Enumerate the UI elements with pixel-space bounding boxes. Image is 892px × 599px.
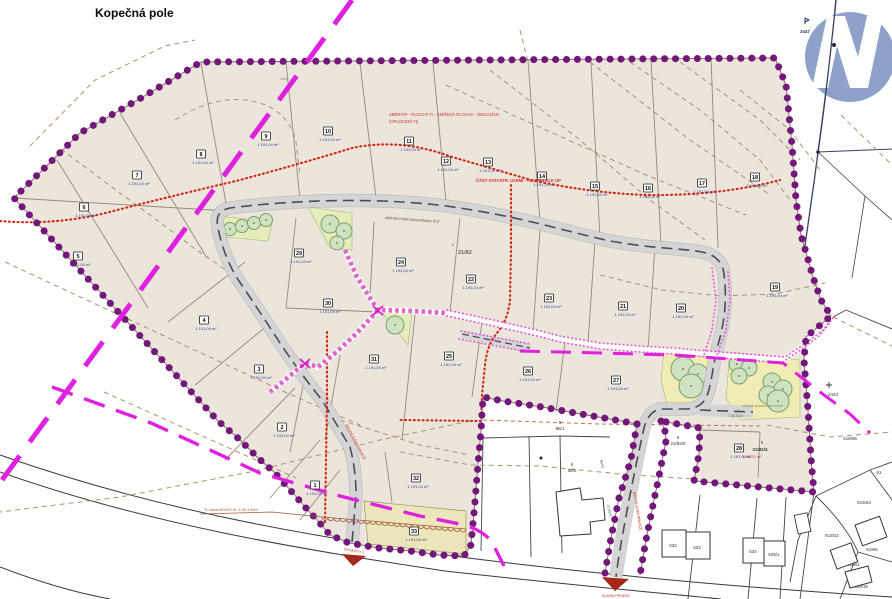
svg-text:1 191,04 m²: 1 191,04 m² xyxy=(69,262,91,267)
svg-text:1 191,04 m²: 1 191,04 m² xyxy=(195,326,217,331)
svg-text:21/82: 21/82 xyxy=(458,250,472,256)
svg-text:27: 27 xyxy=(613,378,619,384)
svg-text:20: 20 xyxy=(678,306,684,312)
svg-text:1 191,04 m²: 1 191,04 m² xyxy=(462,285,484,290)
svg-text:1 191,04 m²: 1 191,04 m² xyxy=(273,433,295,438)
svg-text:1 191,04 m²: 1 191,04 m² xyxy=(639,194,661,199)
svg-text:1 191,04 m²: 1 191,04 m² xyxy=(290,259,312,264)
svg-text:8: 8 xyxy=(199,152,202,158)
svg-text:1 191,04 m²: 1 191,04 m² xyxy=(693,189,715,194)
svg-text:634: 634 xyxy=(749,549,757,554)
svg-text:31: 31 xyxy=(371,357,377,363)
svg-text:18: 18 xyxy=(752,175,758,181)
svg-text:1 191,04 m²: 1 191,04 m² xyxy=(365,365,387,370)
svg-text:1 191,04 m²: 1 191,04 m² xyxy=(437,167,459,172)
svg-text:633: 633 xyxy=(693,545,701,550)
svg-text:1 191,04 m²: 1 191,04 m² xyxy=(75,213,97,218)
svg-text:619/63: 619/63 xyxy=(857,500,871,505)
svg-text:6: 6 xyxy=(82,205,85,211)
svg-text:29: 29 xyxy=(296,251,302,257)
svg-text:21/82/4: 21/82/4 xyxy=(752,447,768,452)
svg-text:19: 19 xyxy=(772,285,778,291)
svg-text:1 191,04 m²: 1 191,04 m² xyxy=(766,293,788,298)
svg-text:1 191,04 m²: 1 191,04 m² xyxy=(746,183,768,188)
svg-text:T.38,91m: T.38,91m xyxy=(728,414,743,418)
svg-text:61: 61 xyxy=(876,470,882,475)
svg-text:II: II xyxy=(452,242,454,247)
svg-text:11: 11 xyxy=(406,139,412,145)
svg-text:635/1: 635/1 xyxy=(768,552,780,557)
svg-text:(OPLOCENÍ TI): (OPLOCENÍ TI) xyxy=(389,119,419,124)
svg-text:13: 13 xyxy=(485,160,491,166)
svg-text:1 191,04 m²: 1 191,04 m² xyxy=(614,312,636,317)
svg-text:30: 30 xyxy=(325,301,331,307)
svg-text:1 191,04 m²: 1 191,04 m² xyxy=(192,160,214,165)
svg-text:1 191,04 m²: 1 191,04 m² xyxy=(607,386,629,391)
svg-text:1 191,04 m²: 1 191,04 m² xyxy=(440,362,462,367)
svg-text:10: 10 xyxy=(325,129,331,135)
svg-text:1 191,04 m²: 1 191,04 m² xyxy=(319,309,341,314)
svg-text:1 191,04 m²: 1 191,04 m² xyxy=(540,304,562,309)
svg-text:15: 15 xyxy=(592,184,598,190)
svg-text:1 191,04 m²: 1 191,04 m² xyxy=(392,268,414,273)
svg-text:1 191,04 m²: 1 191,04 m² xyxy=(319,137,341,142)
svg-text:1 191,04 m²: 1 191,04 m² xyxy=(672,314,694,319)
svg-text:25: 25 xyxy=(446,354,452,360)
svg-text:88/1: 88/1 xyxy=(556,426,565,431)
svg-text:II: II xyxy=(559,420,562,425)
svg-text:SBÉR/OP - PLOCHY TI - SMíšENÁ: SBÉR/OP - PLOCHY TI - SMíšENÁ PLOCHA - O… xyxy=(389,112,500,117)
svg-text:II: II xyxy=(571,462,574,467)
svg-text:619/66: 619/66 xyxy=(843,436,857,441)
svg-text:7: 7 xyxy=(135,173,138,179)
svg-text:1: 1 xyxy=(313,483,316,489)
svg-text:12: 12 xyxy=(443,159,449,165)
svg-text:1 191,04 m²: 1 191,04 m² xyxy=(519,377,541,382)
svg-text:32: 32 xyxy=(413,476,419,482)
svg-text:Kopečná pole: Kopečná pole xyxy=(95,6,174,20)
svg-text:1 191,04 m²: 1 191,04 m² xyxy=(400,147,422,152)
svg-text:632: 632 xyxy=(669,543,677,548)
svg-text:28: 28 xyxy=(736,446,742,452)
svg-text:21: 21 xyxy=(620,304,626,310)
svg-text:1 191,04 m²: 1 191,04 m² xyxy=(479,168,501,173)
svg-text:1 191,04 m²: 1 191,04 m² xyxy=(407,484,429,489)
svg-text:16: 16 xyxy=(645,186,651,192)
svg-text:HLAVNI PRIJEZD: HLAVNI PRIJEZD xyxy=(602,594,630,598)
svg-text:22: 22 xyxy=(468,277,474,283)
svg-text:23: 23 xyxy=(546,296,552,302)
svg-text:1 191,04 m²: 1 191,04 m² xyxy=(586,192,608,197)
svg-text:3447: 3447 xyxy=(800,29,811,34)
svg-text:1 191,04 m²: 1 191,04 m² xyxy=(128,181,150,186)
svg-text:1 191,04 m²: 1 191,04 m² xyxy=(257,142,279,147)
svg-text:33: 33 xyxy=(411,529,417,535)
svg-text:1 191,04 m²: 1 191,04 m² xyxy=(250,375,272,380)
svg-text:88/0: 88/0 xyxy=(568,468,577,473)
svg-text:2: 2 xyxy=(280,425,283,431)
svg-text:619/22: 619/22 xyxy=(825,533,839,538)
svg-text:II: II xyxy=(761,440,764,445)
svg-text:1 191,04 m²: 1 191,04 m² xyxy=(405,537,427,542)
svg-text:II: II xyxy=(677,435,680,440)
svg-text:ČÁST KATASTR. ÚZEMÍ - ROZVOJ D: ČÁST KATASTR. ÚZEMÍ - ROZVOJ DLE ÚP xyxy=(476,178,561,183)
svg-text:21/82/0: 21/82/0 xyxy=(670,441,686,446)
svg-text:17: 17 xyxy=(699,181,705,187)
svg-text:619/5: 619/5 xyxy=(866,547,878,552)
svg-text:26: 26 xyxy=(525,369,531,375)
svg-text:3: 3 xyxy=(257,367,260,373)
svg-text:veřej.: veřej. xyxy=(280,77,288,81)
svg-text:9: 9 xyxy=(264,134,267,140)
svg-text:veřejná prostranství zeleň: veřejná prostranství zeleň xyxy=(742,404,783,408)
svg-text:24: 24 xyxy=(398,260,405,266)
svg-text:5: 5 xyxy=(76,254,79,260)
svg-text:1.98,22 m²: 1.98,22 m² xyxy=(742,454,762,459)
svg-text:1 191,04 m²: 1 191,04 m² xyxy=(306,491,328,496)
svg-text:2443: 2443 xyxy=(828,392,839,397)
svg-text:TL.kanal.DN300 HL.3,45-3,95m: TL.kanal.DN300 HL.3,45-3,95m xyxy=(204,508,258,512)
